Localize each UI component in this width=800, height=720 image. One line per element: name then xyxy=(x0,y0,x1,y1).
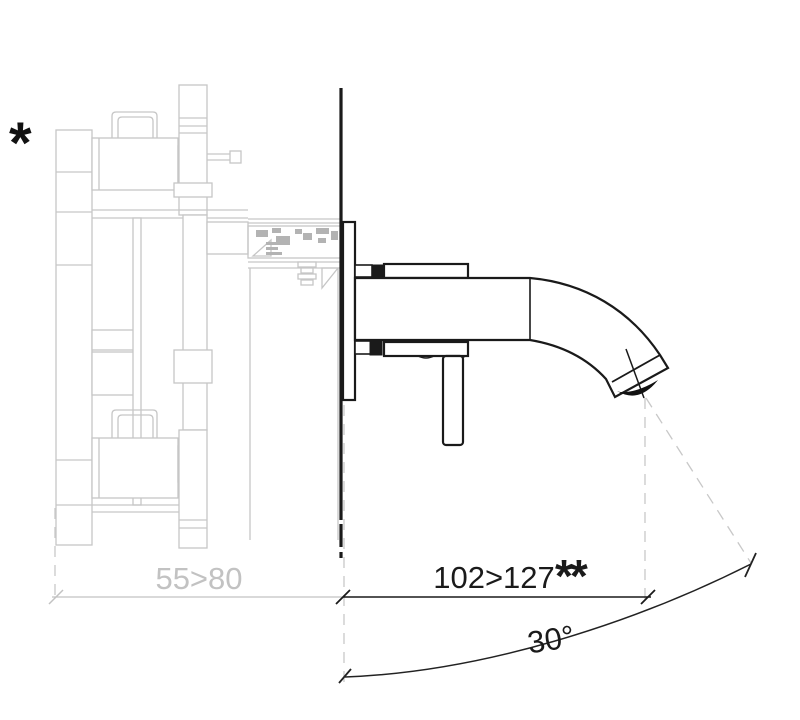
dimension-102-127: 102>127 ** xyxy=(336,550,655,604)
hatch-detail xyxy=(256,228,338,255)
faucet-installation-diagram: 55>80 102>127 ** 30° * xyxy=(0,0,800,720)
lower-mount-notch xyxy=(370,341,382,355)
spout-assembly xyxy=(343,222,668,445)
arc-tick xyxy=(339,669,351,683)
dim-label-102-127: 102>127 xyxy=(433,560,555,595)
dim-label-55-80: 55>80 xyxy=(155,561,242,596)
upper-mount-notch xyxy=(372,265,384,278)
valve-left-column xyxy=(56,130,92,545)
wall-plate xyxy=(248,219,341,540)
thread-detail xyxy=(298,262,316,285)
upper-mount-bar xyxy=(384,264,468,278)
angle-leg-line xyxy=(646,398,751,563)
angle-label-30: 30° xyxy=(525,619,577,661)
upper-bracket xyxy=(112,112,157,138)
technical-drawing-page: 55>80 102>127 ** 30° * xyxy=(0,0,800,720)
footnote-star: * xyxy=(9,111,32,176)
footnote-double-star: ** xyxy=(555,550,588,602)
arc-tick xyxy=(745,553,756,577)
escutcheon-plate xyxy=(343,222,355,400)
dimension-55-80: 55>80 xyxy=(49,561,346,604)
top-column xyxy=(174,85,212,215)
spout-handle xyxy=(443,356,463,445)
behind-wall-valve-drawing xyxy=(56,85,341,548)
side-pin xyxy=(207,151,241,163)
spout-body xyxy=(355,278,668,397)
valve-body-column xyxy=(183,215,207,430)
lower-mount-bar xyxy=(384,342,468,356)
